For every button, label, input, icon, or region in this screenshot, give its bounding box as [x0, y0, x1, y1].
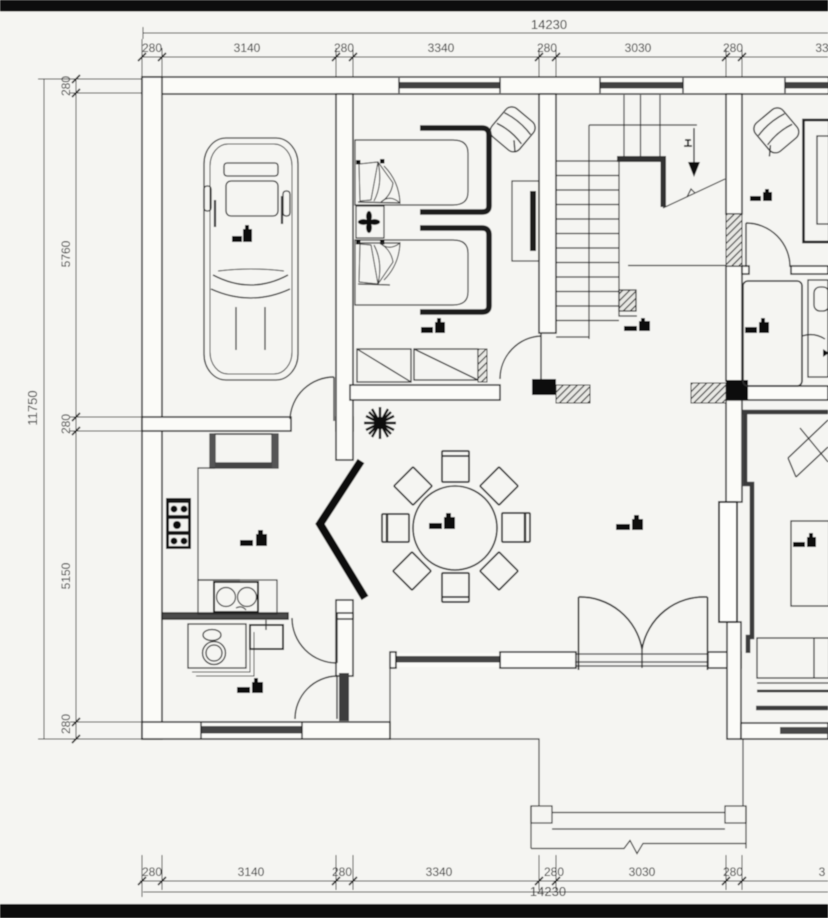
svg-text:3340: 3340	[428, 41, 455, 55]
svg-text:3030: 3030	[625, 41, 652, 55]
svg-text:280: 280	[142, 865, 162, 879]
svg-text:14230: 14230	[531, 17, 567, 32]
svg-text:280: 280	[334, 41, 354, 55]
svg-text:3140: 3140	[234, 41, 261, 55]
svg-text:280: 280	[59, 76, 73, 96]
svg-text:3340: 3340	[426, 865, 453, 879]
svg-text:3030: 3030	[629, 865, 656, 879]
svg-text:280: 280	[332, 865, 352, 879]
svg-text:33: 33	[815, 41, 828, 55]
svg-text:3: 3	[819, 865, 826, 879]
svg-text:5150: 5150	[59, 562, 73, 589]
svg-text:280: 280	[59, 714, 73, 734]
svg-text:11750: 11750	[25, 390, 40, 425]
svg-text:5760: 5760	[59, 240, 73, 267]
svg-text:280: 280	[142, 41, 162, 55]
svg-text:280: 280	[59, 414, 73, 434]
svg-text:280: 280	[537, 41, 557, 55]
svg-text:3140: 3140	[238, 865, 265, 879]
svg-text:280: 280	[544, 865, 564, 879]
svg-text:14230: 14230	[530, 884, 566, 899]
svg-text:280: 280	[723, 865, 743, 879]
svg-text:280: 280	[723, 41, 743, 55]
